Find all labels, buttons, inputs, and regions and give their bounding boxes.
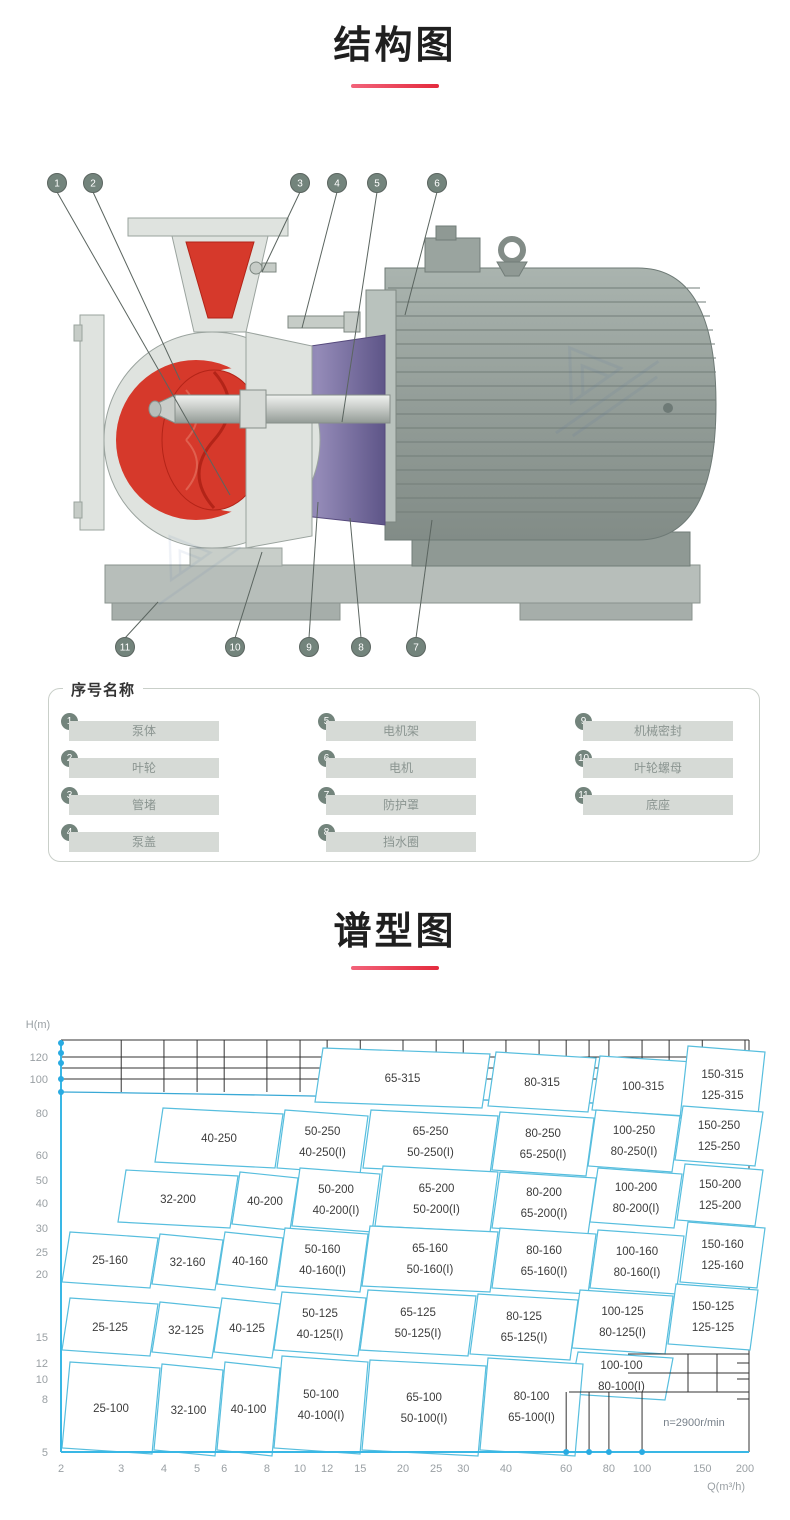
chart-tile-32-125: 32-125 <box>152 1302 220 1358</box>
axis-dot <box>58 1050 64 1056</box>
tile-label: 125-200 <box>699 1200 741 1212</box>
legend-item-name: 电机架 <box>326 721 476 741</box>
pipe-plug <box>250 262 262 274</box>
lifting-eye <box>497 239 527 276</box>
x-tick-label: 6 <box>221 1463 227 1475</box>
tile-label: 40-160(I) <box>299 1265 346 1277</box>
chart-tile-50-125: 50-12540-125(I) <box>274 1292 366 1356</box>
callout-number: 4 <box>334 179 340 190</box>
chart-tile-65-100: 65-10050-100(I) <box>362 1360 486 1456</box>
tile-label: 100-200 <box>615 1182 657 1194</box>
chart-tile-50-160: 50-16040-160(I) <box>277 1228 368 1292</box>
chart-tile-100-250: 100-25080-250(I) <box>588 1110 680 1172</box>
structure-section-title: 结构图 <box>0 14 790 69</box>
chart-tile-80-125: 80-12565-125(I) <box>470 1294 578 1360</box>
callout-number: 11 <box>120 643 131 654</box>
y-tick-label: 12 <box>36 1358 48 1370</box>
tile-label: 40-125(I) <box>297 1329 344 1341</box>
tile-label: 65-125(I) <box>501 1332 548 1344</box>
tile-label: 40-100 <box>231 1404 267 1416</box>
legend-item-name: 叶轮 <box>69 758 219 778</box>
x-tick-label: 5 <box>194 1463 200 1475</box>
axis-dot <box>58 1076 64 1082</box>
y-tick-label: 10 <box>36 1374 48 1386</box>
tile-label: 125-125 <box>692 1322 734 1334</box>
y-axis-title: H(m) <box>26 1019 50 1031</box>
x-tick-label: 200 <box>736 1463 754 1475</box>
legend-grid: 1泵体2叶轮3管堵4泵盖5电机架6电机7防护罩8挡水圈9机械密封10叶轮螺母11… <box>49 689 759 861</box>
chart-tile-50-100: 50-10040-100(I) <box>274 1356 368 1454</box>
y-tick-label: 30 <box>36 1223 48 1235</box>
axis-dot <box>586 1449 592 1455</box>
speed-annotation: n=2900r/min <box>663 1417 724 1429</box>
legend-item-name: 防护罩 <box>326 795 476 815</box>
chart-tile-50-250: 50-25040-250(I) <box>277 1110 368 1174</box>
x-tick-label: 80 <box>603 1463 615 1475</box>
tile-label: 80-315 <box>524 1077 560 1089</box>
x-tick-label: 20 <box>397 1463 409 1475</box>
tile-label: 65-100(I) <box>508 1412 555 1424</box>
y-tick-label: 60 <box>36 1150 48 1162</box>
legend-title: 序号名称 <box>63 679 143 700</box>
tile-label: 50-125(I) <box>395 1328 442 1340</box>
chart-tile-150-160: 150-160125-160 <box>680 1222 765 1288</box>
chart-tile-80-200: 80-20065-200(I) <box>492 1172 596 1234</box>
tile-label: 125-160 <box>701 1260 743 1272</box>
x-tick-label: 30 <box>457 1463 469 1475</box>
tile-label: 65-100 <box>406 1392 442 1404</box>
chart-tile-100-100: 100-10080-100(I) <box>570 1352 673 1400</box>
suction-flange <box>80 315 104 530</box>
tile-label: 25-100 <box>93 1403 129 1415</box>
tile-label: 65-160 <box>412 1243 448 1255</box>
stud-bolt <box>288 316 346 328</box>
x-tick-label: 2 <box>58 1463 64 1475</box>
legend-item-3: 3管堵 <box>61 787 219 824</box>
y-tick-label: 15 <box>36 1332 48 1344</box>
tile-label: 40-200(I) <box>313 1205 360 1217</box>
chart-tile-100-125: 100-12580-125(I) <box>572 1290 673 1354</box>
x-tick-label: 15 <box>354 1463 366 1475</box>
chart-tile-40-100: 40-100 <box>217 1362 280 1456</box>
tile-label: 80-250 <box>525 1128 561 1140</box>
legend-item-name: 泵盖 <box>69 832 219 852</box>
shaft <box>149 390 390 428</box>
product-page: 结构图 <box>0 0 790 1520</box>
y-tick-label: 40 <box>36 1198 48 1210</box>
y-tick-label: 50 <box>36 1175 48 1187</box>
title-underline <box>351 966 439 970</box>
tile-label: 50-100(I) <box>401 1413 448 1425</box>
x-axis-title: Q(m³/h) <box>707 1481 745 1493</box>
tile-label: 65-200(I) <box>521 1208 568 1220</box>
callout-4: 4 <box>302 174 347 329</box>
chart-tile-65-315: 65-315 <box>315 1048 490 1108</box>
axis-dot <box>606 1449 612 1455</box>
callout-number: 5 <box>374 179 380 190</box>
legend-item-10: 10叶轮螺母 <box>575 750 733 787</box>
tile-label: 65-250(I) <box>520 1149 567 1161</box>
chart-tile-65-200: 65-20050-200(I) <box>375 1166 498 1232</box>
tile-label: 50-160(I) <box>407 1264 454 1276</box>
legend-item-1: 1泵体 <box>61 713 219 750</box>
legend-item-7: 7防护罩 <box>318 787 476 824</box>
tile-label: 40-100(I) <box>298 1410 345 1422</box>
chart-tile-150-200: 150-200125-200 <box>677 1164 763 1226</box>
tile-label: 100-315 <box>622 1081 664 1093</box>
title-underline <box>351 84 439 88</box>
tile-label: 100-125 <box>601 1306 643 1318</box>
tile-label: 40-200 <box>247 1196 283 1208</box>
tile-label: 40-160 <box>232 1256 268 1268</box>
tile-label: 80-200(I) <box>613 1203 660 1215</box>
tile-label: 50-125 <box>302 1308 338 1320</box>
tile-label: 150-200 <box>699 1179 741 1191</box>
tile-label: 80-100(I) <box>598 1381 645 1393</box>
legend-item-name: 电机 <box>326 758 476 778</box>
pump-base <box>105 565 700 620</box>
tile-label: 150-315 <box>701 1069 743 1081</box>
callout-number: 6 <box>434 179 440 190</box>
tile-label: 65-200 <box>419 1183 455 1195</box>
tile-label: 80-125(I) <box>599 1327 646 1339</box>
legend-item-8: 8挡水圈 <box>318 824 476 861</box>
tile-label: 80-200 <box>526 1187 562 1199</box>
tile-label: 40-250 <box>201 1133 237 1145</box>
y-tick-label: 25 <box>36 1247 48 1259</box>
chart-tile-80-100: 80-10065-100(I) <box>480 1358 583 1456</box>
legend-item-name: 泵体 <box>69 721 219 741</box>
tile-label: 80-160 <box>526 1245 562 1257</box>
tile-label: 50-160 <box>305 1244 341 1256</box>
y-tick-label: 8 <box>42 1394 48 1406</box>
pump-structure-diagram: 1234561110987 <box>0 150 790 680</box>
tile-label: 65-160(I) <box>521 1266 568 1278</box>
discharge-flange <box>128 218 288 236</box>
callout-number: 3 <box>297 179 303 190</box>
legend-item-6: 6电机 <box>318 750 476 787</box>
legend-item-name: 底座 <box>583 795 733 815</box>
chart-tile-32-160: 32-160 <box>152 1234 223 1290</box>
tile-label: 80-125 <box>506 1311 542 1323</box>
tile-label: 32-200 <box>160 1194 196 1206</box>
legend-item-2: 2叶轮 <box>61 750 219 787</box>
tile-label: 50-100 <box>303 1389 339 1401</box>
chart-tile-150-125: 150-125125-125 <box>668 1284 758 1350</box>
chart-tile-40-125: 40-125 <box>214 1298 280 1358</box>
chart-tile-80-315: 80-315 <box>488 1052 596 1112</box>
legend-item-5: 5电机架 <box>318 713 476 750</box>
legend-item-name: 挡水圈 <box>326 832 476 852</box>
tile-label: 65-125 <box>400 1307 436 1319</box>
tile-label: 150-160 <box>701 1239 743 1251</box>
tile-label: 100-250 <box>613 1125 655 1137</box>
chart-tile-65-160: 65-16050-160(I) <box>362 1226 498 1292</box>
legend-item-4: 4泵盖 <box>61 824 219 861</box>
tile-label: 125-250 <box>698 1141 740 1153</box>
y-tick-label: 100 <box>30 1074 48 1086</box>
tile-label: 32-100 <box>171 1405 207 1417</box>
tile-label: 40-250(I) <box>299 1147 346 1159</box>
x-tick-label: 150 <box>693 1463 711 1475</box>
legend-item-11: 11底座 <box>575 787 733 824</box>
parts-legend: 序号名称 1泵体2叶轮3管堵4泵盖5电机架6电机7防护罩8挡水圈9机械密封10叶… <box>48 688 760 862</box>
tile-label: 80-160(I) <box>614 1267 661 1279</box>
chart-tile-50-200: 50-20040-200(I) <box>292 1168 380 1232</box>
chart-tile-40-200: 40-200 <box>232 1172 298 1230</box>
callout-number: 1 <box>54 179 60 190</box>
callout-number: 2 <box>90 179 96 190</box>
tile-label: 50-250(I) <box>407 1147 454 1159</box>
tile-label: 50-200 <box>318 1184 354 1196</box>
x-tick-label: 4 <box>161 1463 167 1475</box>
pump-selection-chart: 65-31580-315100-315150-315125-31540-2505… <box>0 1010 790 1520</box>
motor <box>366 226 716 566</box>
chart-tile-100-160: 100-16080-160(I) <box>590 1230 684 1294</box>
tile-label: 32-160 <box>170 1257 206 1269</box>
terminal-box <box>425 238 480 272</box>
axis-dot <box>58 1060 64 1066</box>
x-tick-label: 10 <box>294 1463 306 1475</box>
tile-label: 25-125 <box>92 1322 128 1334</box>
chart-tile-25-125: 25-125 <box>62 1298 158 1356</box>
y-tick-label: 120 <box>30 1052 48 1064</box>
chart-tile-80-250: 80-25065-250(I) <box>492 1112 594 1176</box>
x-tick-label: 25 <box>430 1463 442 1475</box>
tile-label: 80-100 <box>514 1391 550 1403</box>
tile-label: 100-100 <box>600 1360 642 1372</box>
chart-tile-40-160: 40-160 <box>217 1232 283 1290</box>
y-tick-label: 80 <box>36 1108 48 1120</box>
tile-label: 100-160 <box>616 1246 658 1258</box>
callout-number: 7 <box>413 643 419 654</box>
tile-label: 150-125 <box>692 1301 734 1313</box>
callout-number: 8 <box>358 643 364 654</box>
tile-label: 65-250 <box>413 1126 449 1138</box>
tile-label: 32-125 <box>168 1325 204 1337</box>
x-tick-label: 3 <box>118 1463 124 1475</box>
legend-item-name: 机械密封 <box>583 721 733 741</box>
tile-label: 150-250 <box>698 1120 740 1132</box>
axis-dot <box>639 1449 645 1455</box>
chart-tile-25-160: 25-160 <box>62 1232 158 1288</box>
callout-number: 9 <box>306 643 312 654</box>
callout-number: 10 <box>229 643 241 654</box>
chart-tile-40-250: 40-250 <box>155 1108 283 1168</box>
x-tick-label: 8 <box>264 1463 270 1475</box>
tile-label: 65-315 <box>385 1073 421 1085</box>
tile-label: 50-250 <box>305 1126 341 1138</box>
tile-label: 25-160 <box>92 1255 128 1267</box>
x-tick-label: 12 <box>321 1463 333 1475</box>
x-tick-label: 60 <box>560 1463 572 1475</box>
tile-label: 125-315 <box>701 1090 743 1102</box>
axis-dot <box>563 1449 569 1455</box>
axis-dot <box>58 1089 64 1095</box>
tile-label: 50-200(I) <box>413 1204 460 1216</box>
chart-tile-150-250: 150-250125-250 <box>675 1106 763 1166</box>
legend-item-name: 叶轮螺母 <box>583 758 733 778</box>
chart-tile-65-125: 65-12550-125(I) <box>360 1290 476 1356</box>
chart-tile-25-100: 25-100 <box>62 1362 160 1454</box>
axis-dot <box>58 1040 64 1046</box>
legend-item-name: 管堵 <box>69 795 219 815</box>
chart-tile-65-250: 65-25050-250(I) <box>363 1110 498 1174</box>
tile-label: 80-250(I) <box>611 1146 658 1158</box>
chart-tile-100-200: 100-20080-200(I) <box>590 1168 682 1228</box>
y-tick-label: 5 <box>42 1447 48 1459</box>
chart-tile-32-100: 32-100 <box>154 1364 223 1456</box>
legend-item-9: 9机械密封 <box>575 713 733 750</box>
chart-tile-80-160: 80-16065-160(I) <box>492 1228 596 1294</box>
spectrum-section-title: 谱型图 <box>0 900 790 955</box>
x-tick-label: 40 <box>500 1463 512 1475</box>
tile-label: 40-125 <box>229 1323 265 1335</box>
y-tick-label: 20 <box>36 1269 48 1281</box>
chart-tile-32-200: 32-200 <box>118 1170 238 1228</box>
x-tick-label: 100 <box>633 1463 651 1475</box>
chart-tile-100-315: 100-315 <box>592 1056 694 1116</box>
